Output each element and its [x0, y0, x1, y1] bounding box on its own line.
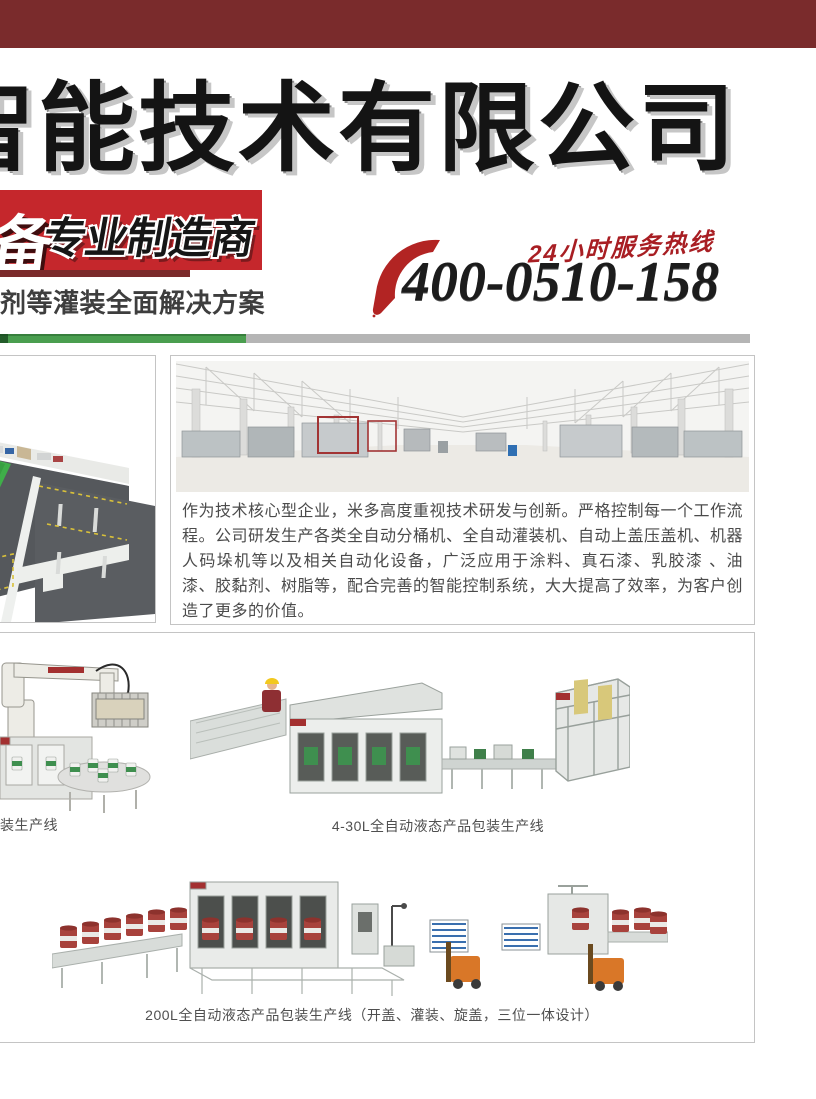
divider-gray [246, 334, 750, 343]
plant-layout-panel [0, 355, 156, 623]
about-panel: 作为技术核心型企业，米多高度重视技术研发与创新。严格控制每一个工作流程。公司研发… [170, 355, 755, 625]
badge-shadow-strip [0, 270, 190, 277]
robot-palletizer-image [0, 645, 155, 815]
products-panel: 装生产线 4-30L全自动液态产品包装生产线 200L全自动液态产品包装生产线（… [0, 632, 755, 1043]
manufacturer-badge: 备 专业制造商 [0, 190, 262, 270]
badge-label: 专业制造商 [39, 204, 260, 266]
caption-palletizer-line: 装生产线 [0, 815, 58, 835]
filling-line-4-30l-image [190, 663, 630, 816]
tagline: 剂等灌装全面解决方案 [0, 283, 265, 320]
company-title: 智能技术有限公司 [0, 80, 816, 179]
header-bar [0, 0, 816, 48]
factory-interior-photo [176, 361, 749, 492]
caption-200l-line: 200L全自动液态产品包装生产线（开盖、灌装、旋盖，三位一体设计） [72, 1005, 672, 1025]
caption-4-30l-line: 4-30L全自动液态产品包装生产线 [238, 816, 638, 836]
divider-green [0, 334, 246, 343]
factory-layout-3d-image [0, 356, 155, 622]
about-paragraph: 作为技术核心型企业，米多高度重视技术研发与创新。严格控制每一个工作流程。公司研发… [182, 499, 743, 624]
hotline-number: 400-0510-158 [402, 250, 719, 314]
drum-line-200l-image [52, 876, 668, 1003]
